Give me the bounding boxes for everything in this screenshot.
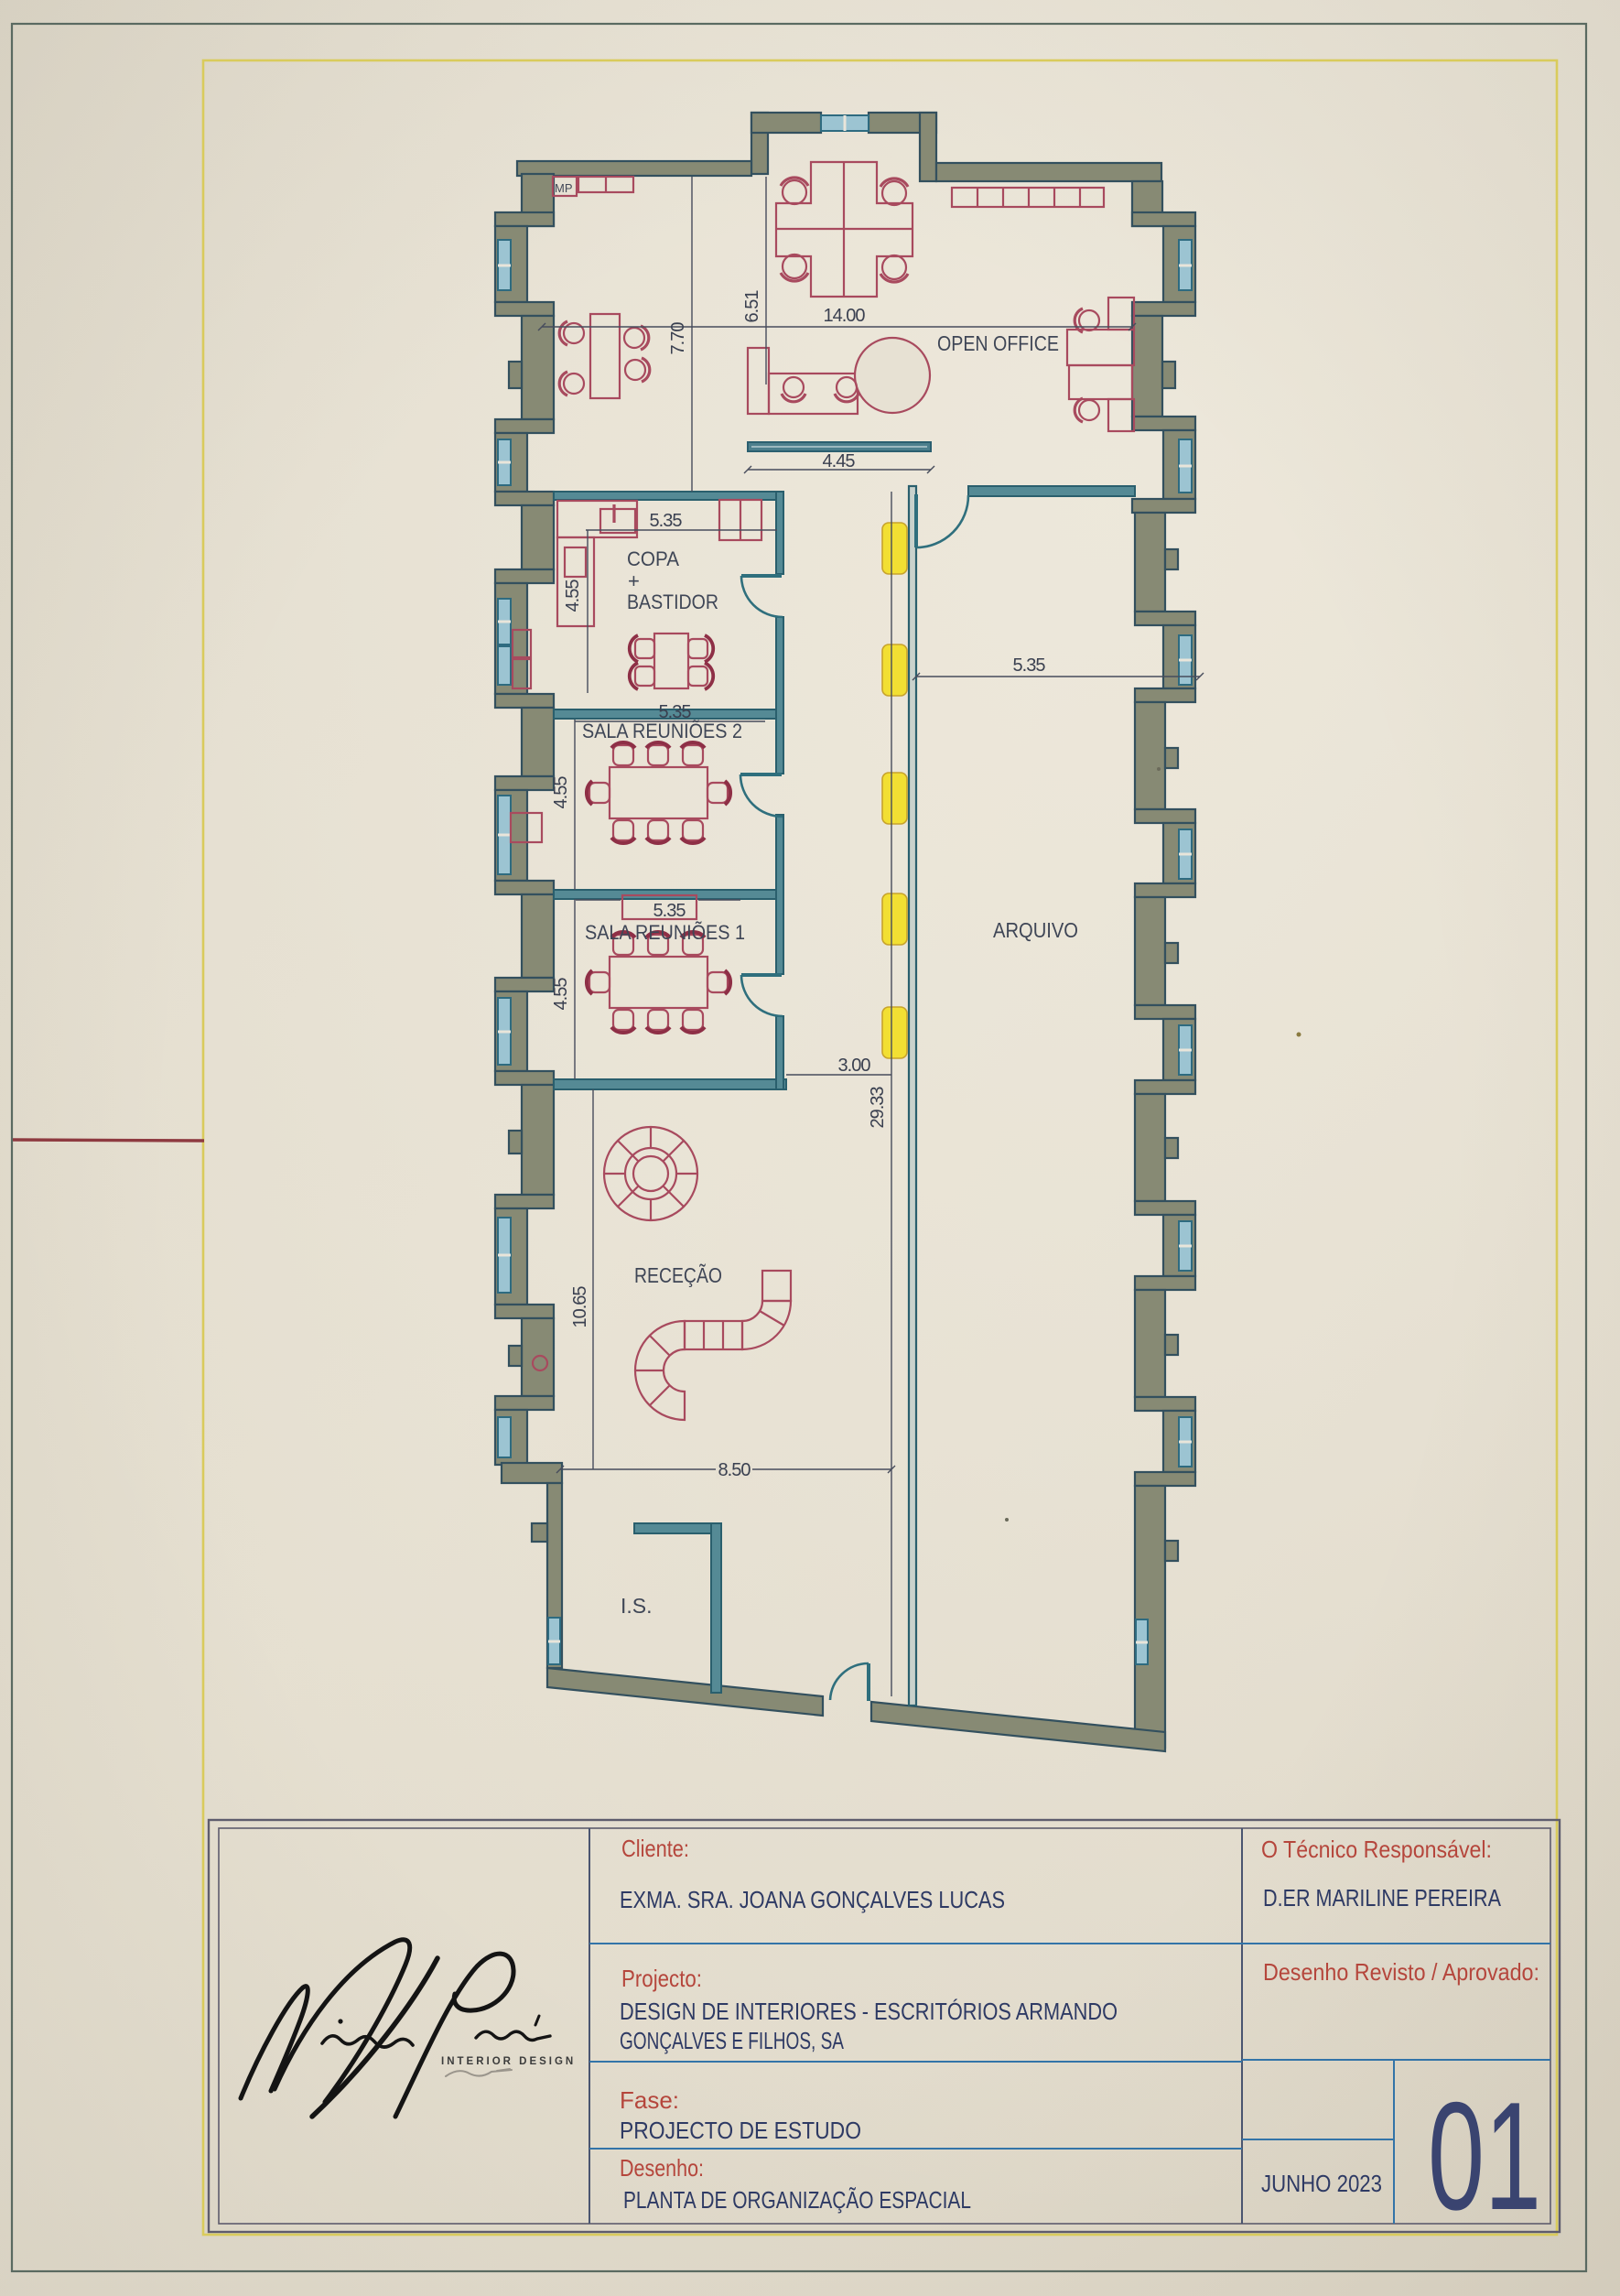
svg-text:O Técnico Responsável:: O Técnico Responsável: — [1261, 1836, 1492, 1863]
svg-text:MP: MP — [555, 181, 573, 195]
svg-text:EXMA. SRA. JOANA GONÇALVES LUC: EXMA. SRA. JOANA GONÇALVES LUCAS — [620, 1886, 1005, 1913]
svg-text:7.70: 7.70 — [668, 322, 688, 355]
svg-text:14.00: 14.00 — [823, 306, 865, 326]
svg-text:10.65: 10.65 — [570, 1286, 590, 1328]
svg-text:5.35: 5.35 — [650, 511, 683, 531]
svg-text:PROJECTO DE ESTUDO: PROJECTO DE ESTUDO — [620, 2117, 861, 2144]
svg-text:Desenho Revisto / Aprovado:: Desenho Revisto / Aprovado: — [1263, 1958, 1539, 1986]
svg-text:4.55: 4.55 — [551, 978, 571, 1011]
svg-text:DESIGN DE INTERIORES - ESCRITÓ: DESIGN DE INTERIORES - ESCRITÓRIOS ARMAN… — [620, 1998, 1118, 2025]
svg-text:4.55: 4.55 — [551, 776, 571, 809]
svg-text:5.35: 5.35 — [1013, 655, 1046, 676]
svg-text:Fase:: Fase: — [620, 2086, 679, 2114]
svg-text:Cliente:: Cliente: — [621, 1835, 689, 1862]
svg-text:COPA: COPA — [627, 547, 679, 570]
svg-text:+: + — [628, 569, 640, 592]
svg-text:29.33: 29.33 — [868, 1087, 888, 1129]
svg-text:JUNHO 2023: JUNHO 2023 — [1261, 2170, 1382, 2197]
svg-text:4.55: 4.55 — [563, 579, 583, 612]
svg-text:RECEÇÃO: RECEÇÃO — [634, 1263, 722, 1287]
svg-text:8.50: 8.50 — [718, 1460, 751, 1480]
svg-text:Projecto:: Projecto: — [621, 1965, 702, 1992]
svg-text:ARQUIVO: ARQUIVO — [993, 918, 1078, 942]
svg-text:SALA REUNIÕES 1: SALA REUNIÕES 1 — [585, 921, 745, 944]
svg-text:GONÇALVES E FILHOS, SA: GONÇALVES E FILHOS, SA — [620, 2027, 844, 2054]
svg-text:01: 01 — [1428, 2070, 1541, 2242]
svg-text:BASTIDOR: BASTIDOR — [627, 590, 718, 613]
svg-text:OPEN OFFICE: OPEN OFFICE — [937, 331, 1059, 355]
svg-text:SALA REUNIÕES 2: SALA REUNIÕES 2 — [582, 720, 742, 742]
svg-text:PLANTA DE ORGANIZAÇÃO ESPACIAL: PLANTA DE ORGANIZAÇÃO ESPACIAL — [623, 2186, 971, 2214]
svg-text:3.00: 3.00 — [838, 1056, 871, 1076]
svg-text:5.35: 5.35 — [653, 901, 686, 921]
svg-text:INTERIOR DESIGN: INTERIOR DESIGN — [441, 2056, 576, 2067]
svg-text:4.45: 4.45 — [823, 451, 856, 471]
svg-text:6.51: 6.51 — [742, 290, 762, 323]
svg-text:I.S.: I.S. — [621, 1594, 653, 1618]
svg-text:Desenho:: Desenho: — [620, 2154, 704, 2182]
svg-text:D.ER MARILINE PEREIRA: D.ER MARILINE PEREIRA — [1263, 1884, 1502, 1912]
